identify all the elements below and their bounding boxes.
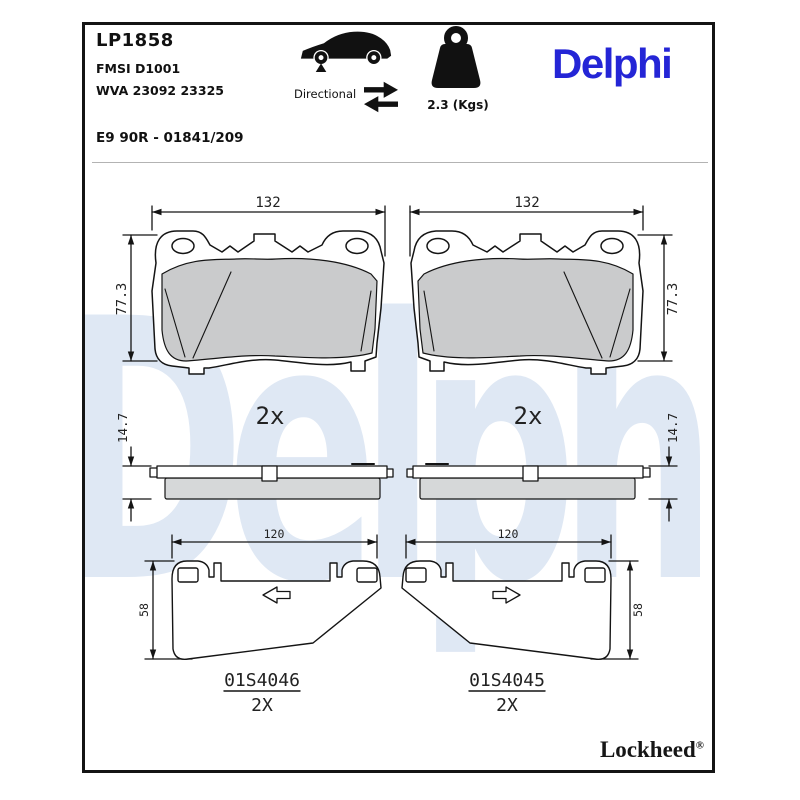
pad-side-view-right [407,447,677,521]
registered-trademark-symbol: ® [696,739,704,751]
shim-quantity-right: 2X [496,695,518,716]
dim-shim-height-left: 58 [137,603,151,617]
pad-quantity-right: 2x [514,402,543,430]
weight-kettlebell-icon [421,25,491,97]
lockheed-logo: Lockheed® [540,737,704,763]
dim-shim-height-right: 58 [631,603,645,617]
technical-drawing: 132 132 77.3 77.3 2x 2x 14.7 14.7 120 12… [0,0,800,800]
pad-front-view-left [123,206,385,374]
dim-pad-width-left: 132 [255,195,280,211]
ece-approval-number: E9 90R - 01841/209 [96,130,244,146]
delphi-logo: Delphi [552,40,671,88]
car-silhouette-icon [298,24,394,74]
fmsi-number: FMSI D1001 [96,61,180,76]
dim-pad-height-left: 77.3 [114,283,130,316]
dim-pad-height-right: 77.3 [665,283,681,316]
dim-shim-width-right: 120 [498,527,519,541]
shim-part-code-left: 01S4046 [224,670,300,691]
part-number: LP1858 [96,30,174,51]
shim-drawing-left [145,535,381,659]
lockheed-logo-text: Lockheed [600,737,696,762]
wva-number: WVA 23092 23325 [96,83,224,98]
datasheet-page: Delphi LP1858 FMSI D1001 WVA 23092 23325… [0,0,800,800]
weight-value: 2.3 (Kgs) [408,98,508,112]
front-axle-arrow-icon [316,63,327,72]
dim-pad-thickness-right: 14.7 [665,413,680,443]
shim-part-code-right: 01S4045 [469,670,545,691]
header-divider [92,162,708,163]
shim-quantity-left: 2X [251,695,273,716]
dim-shim-width-left: 120 [264,527,285,541]
pad-front-view-right [410,206,672,374]
pad-side-view-left [123,447,393,521]
directional-label: Directional [294,87,356,101]
dim-pad-width-right: 132 [514,195,539,211]
dim-pad-thickness-left: 14.7 [115,413,130,443]
pad-quantity-left: 2x [256,402,285,430]
shim-drawing-right [402,535,638,659]
two-way-arrows-icon [361,80,401,114]
